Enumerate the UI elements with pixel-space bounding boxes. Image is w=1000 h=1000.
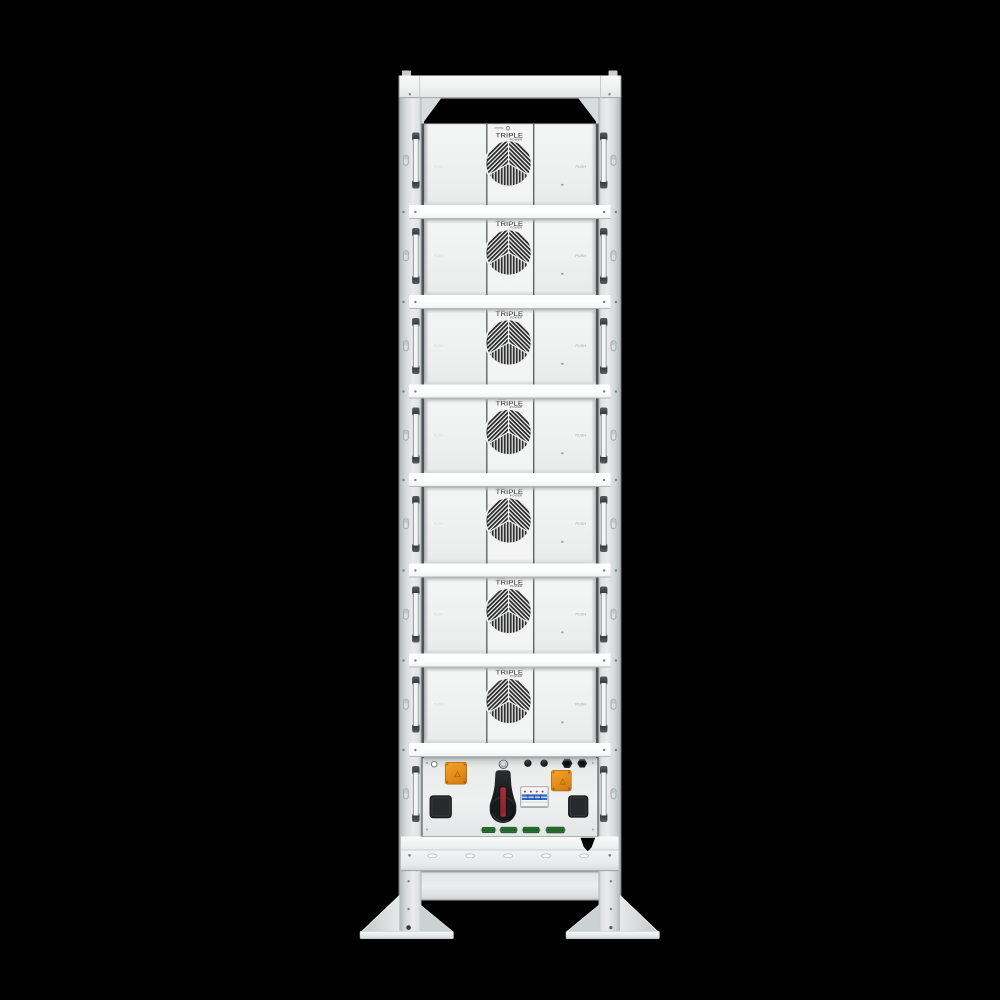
svg-text:PUSH: PUSH: [434, 165, 444, 169]
svg-text:PUSH: PUSH: [575, 521, 586, 526]
svg-text:POWER: POWER: [510, 585, 523, 588]
svg-text:PUSH: PUSH: [434, 522, 444, 526]
svg-text:PUSH: PUSH: [575, 702, 586, 707]
svg-text:PUSH: PUSH: [434, 344, 444, 348]
svg-text:PUSH: PUSH: [575, 343, 586, 348]
svg-text:POWER: POWER: [510, 495, 523, 498]
svg-text:PUSH: PUSH: [575, 253, 586, 258]
svg-text:PUSH: PUSH: [575, 612, 586, 617]
svg-text:POWER: POWER: [510, 139, 523, 142]
svg-text:PUSH: PUSH: [434, 613, 444, 617]
svg-text:POWER: POWER: [510, 227, 523, 230]
svg-text:POWER: POWER: [510, 317, 523, 320]
svg-text:POWER: POWER: [510, 675, 523, 678]
svg-text:POWER: POWER: [510, 406, 523, 409]
svg-text:PUSH: PUSH: [434, 434, 444, 438]
svg-text:PUSH: PUSH: [434, 703, 444, 707]
svg-text:PUSH: PUSH: [434, 254, 444, 258]
svg-text:PUSH: PUSH: [575, 433, 586, 438]
svg-text:PUSH: PUSH: [575, 164, 586, 169]
